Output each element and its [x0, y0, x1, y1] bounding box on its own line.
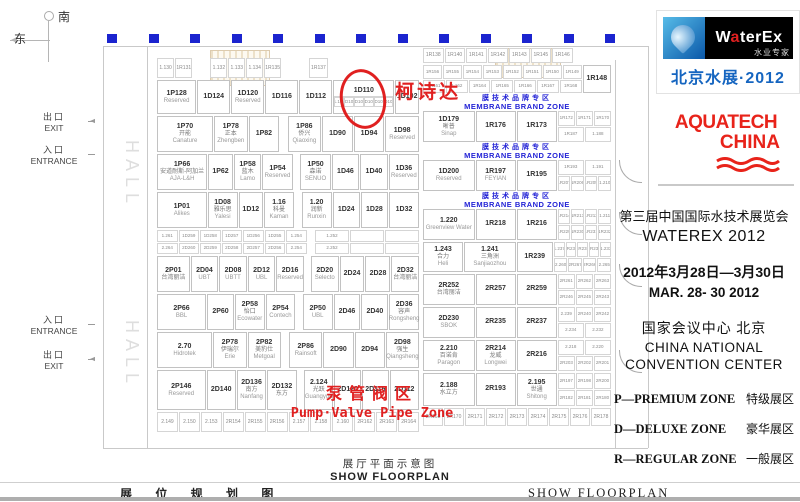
booth-name-en: SBOK — [440, 323, 457, 330]
booth-name-en: Metgoal — [253, 354, 274, 361]
small-booth — [350, 230, 384, 242]
booth-1R138: 1R138 — [423, 48, 444, 63]
booth-1.20: 1.20润新Runxin — [302, 192, 332, 228]
legend-zone-en: P—PREMIUM ZONE — [614, 392, 735, 407]
booth-id: 1D200 — [438, 168, 459, 176]
booth-1R213: 1R213 — [571, 209, 584, 224]
legend-zone-cn: 特级展区 — [746, 390, 794, 407]
booth-1D24: 1D24 — [333, 192, 360, 228]
booth-2R240: 2R240 — [576, 307, 593, 322]
aisle-gap — [305, 256, 310, 292]
booth-2D40: 2D40 — [361, 294, 388, 330]
booth-2.234: 2.234 — [558, 323, 584, 338]
booth-id: 1.220 — [440, 217, 458, 225]
booth-id: 1P54 — [269, 165, 285, 173]
booth-id: 1P01 — [174, 203, 190, 211]
booth-name-en: Reserved — [277, 275, 303, 282]
booth-1.134: 1.134 — [246, 58, 263, 78]
booth-name-en: Heli — [438, 261, 448, 268]
booth-id: 2D16 — [282, 267, 299, 275]
venue-en-line1: CHINA NATIONAL — [610, 340, 798, 355]
booth-1R167: 1R167 — [537, 80, 559, 94]
booth-row: 1P01Alikes1D08雅乐思Yalesi1D121.16科曼Kaman1.… — [157, 192, 419, 228]
booth-2R242: 2R242 — [594, 307, 611, 322]
gate-label-en: EXIT — [24, 123, 84, 133]
small-booth-row: 2.2642D2602D2592D2582D2572D2562.254 — [157, 243, 307, 255]
small-booth-row: 2.2392R2402R242 — [558, 307, 611, 322]
small-booth-row: 1R1931.191 — [558, 160, 611, 175]
booth-name-en: Paragon — [437, 360, 460, 367]
booth-1D108: 1D108 — [344, 97, 354, 107]
waterex-tagline: 水业专家 — [754, 47, 790, 58]
booth-row: 1P70开能Canature1P78正本Zhengben1P821P86侨兴Qi… — [157, 116, 419, 152]
booth-2D259: 2D259 — [200, 243, 221, 255]
column-marker — [149, 34, 159, 43]
booth-id: 2R214 — [485, 345, 506, 353]
booth-1R145: 1R145 — [531, 48, 552, 63]
compass-line-vertical — [48, 20, 49, 62]
booth-1R193: 1R193 — [558, 160, 584, 175]
booth-2R216: 2R216 — [517, 340, 557, 371]
booth-1.16: 1.16科曼Kaman — [264, 192, 294, 228]
booth-name-cn: 森诺 — [310, 169, 322, 176]
booth-row: 2P01台湾丽洁2D04UBT2D08UBTT2D12UBL2D16Reserv… — [157, 256, 419, 292]
booth-1R154: 1R154 — [463, 65, 482, 79]
booth-name-en: UBL — [312, 313, 324, 320]
booth-2D16: 2D16Reserved — [276, 256, 304, 292]
booth-row: 2.70Hidrotek2P78伊瑞尔Erie2P82美豹仕Metgoal2P8… — [157, 332, 419, 368]
booth-1R230: 1R230 — [571, 225, 584, 240]
booth-2R173: 2R173 — [507, 408, 527, 426]
booth-1D110: 柯诗达1D1101.1091D1081D1071D1061D1051D104 — [333, 80, 394, 114]
booth-2.220: 2.220 — [585, 340, 611, 355]
wall-outer-right — [648, 46, 649, 448]
booth-id: 2R235 — [485, 318, 506, 326]
booth-id: 2D90 — [330, 346, 347, 354]
booth-id: 2P86 — [298, 343, 314, 351]
booth-2D12: 2D12UBL — [248, 256, 276, 292]
booth-name-en: AJA-L&H — [170, 176, 195, 183]
booth-name-en: Qiaoxing — [293, 138, 317, 145]
small-booth-row: 1R1721R1711R170 — [558, 111, 611, 126]
booth-name-en: Hidrotek — [173, 351, 195, 358]
legend-row: P—PREMIUM ZONE特级展区 — [614, 390, 794, 407]
booth-name-en: Runxin — [307, 214, 326, 221]
booth-id: 1P128 — [166, 90, 186, 98]
booth-name-en: Zhengben — [217, 138, 244, 145]
small-booth-row: 1R2141R2131R2121.211 — [558, 209, 611, 224]
booth-1R153: 1R153 — [483, 65, 502, 79]
booth-2D24: 2D24 — [340, 256, 365, 292]
booth-row: 1.2611D2591D2581D2571D2561D2551.2542.264… — [157, 230, 419, 254]
booth-2.210: 2.210百诺肯Paragon — [423, 340, 475, 371]
small-booth-cluster: 2R2612R2622R2632R2462R2452R243 — [558, 274, 611, 305]
booth-1R135: 1R135 — [264, 58, 281, 78]
booth-1.237: 1.237 — [554, 242, 565, 257]
booth-2D94: 2D94 — [355, 332, 385, 368]
booth-2D258: 2D258 — [222, 243, 243, 255]
hall-label: HALL — [121, 320, 142, 389]
booth-name-en: Greenview Water — [426, 225, 472, 232]
small-booth-cluster: 2.2392R2402R2422.2342.232 — [558, 307, 611, 338]
booth-id: 1D94 — [361, 130, 378, 138]
booth-name-cn: 三角洲 — [481, 254, 499, 261]
booth-name-cn: 伊瑞尔 — [221, 347, 239, 354]
booth-1R173: 1R173 — [517, 111, 557, 142]
booth-2P66: 2P66BBL — [157, 294, 206, 330]
booth-1R168: 1R168 — [560, 80, 582, 94]
booth-1.243: 1.243合力Heli — [423, 242, 463, 272]
booth-sub-ids: 1.1091D1081D1071D1061D1051D104 — [334, 96, 393, 107]
plan-caption-cn: 展厅平面示意图 — [300, 456, 480, 471]
booth-name-en: Rongsheng — [389, 316, 420, 323]
booth-name-en: BBL — [176, 313, 187, 320]
small-booth-cluster: 2.2182.2202R2032R2022R201 — [558, 340, 611, 371]
legend-zone-en: R—REGULAR ZONE — [614, 452, 737, 467]
booth-1R165: 1R165 — [491, 80, 513, 94]
booth-2R263: 2R263 — [594, 274, 611, 289]
booth-2D08: 2D08UBTT — [219, 256, 247, 292]
booth-2P01: 2P01台湾丽洁 — [157, 256, 190, 292]
booth-1D90: 1D90 — [322, 116, 353, 152]
booth-2D260: 2D260 — [179, 243, 200, 255]
booth-name-en: Longwei — [484, 360, 506, 367]
small-booth-row: 2.2602R2672R2662.265 — [554, 258, 611, 273]
booth-1R131: 1R131 — [175, 58, 192, 78]
booth-1P01: 1P01Alikes — [157, 192, 207, 228]
booth-1R143: 1R143 — [509, 48, 530, 63]
booth-row: 1P66安道耐斯-阿加兰AJA-L&H1P621P58蓝木Lamo1P54Res… — [157, 154, 419, 190]
booth-id: 2R252 — [438, 282, 459, 290]
column-marker — [522, 34, 532, 43]
booth-1R149: 1R149 — [563, 65, 582, 79]
booth-id: 2P66 — [173, 305, 189, 313]
small-booth-cluster: 2R1972R1982R2002R1822R1812R180 — [558, 373, 611, 406]
booth-2R257: 2R257 — [476, 274, 516, 305]
booth-id: 1R195 — [526, 171, 547, 179]
booth-1R239: 1R239 — [517, 242, 553, 272]
entrance-label: 入口ENTRANCE — [24, 143, 84, 166]
booth-name-en: UBT — [198, 275, 210, 282]
booth-1R148: 1R148 — [583, 65, 611, 93]
small-booth-strip: 1R1381R1401R1411R1421R1431R1451R146 — [423, 48, 573, 63]
legend-zone-en: D—DELUXE ZONE — [614, 422, 726, 437]
booth-name-cn: 容声 — [398, 309, 410, 316]
booth-row: 1.1301R1311.1321.1331.1341R1351R137 — [157, 58, 419, 78]
booth-1R166: 1R166 — [514, 80, 536, 94]
booth-1D40: 1D40 — [360, 154, 388, 190]
column-marker — [356, 34, 366, 43]
booth-name-en: Ecowater — [237, 316, 262, 323]
gate-label-en: ENTRANCE — [24, 326, 84, 336]
booth-1D120: 1D120Reserved — [231, 80, 264, 114]
booth-id: 1D40 — [366, 168, 383, 176]
booth-id: 1D36 — [395, 165, 412, 173]
booth-id: 1R239 — [524, 253, 545, 261]
booth-1D107: 1D107 — [354, 97, 364, 107]
wall-inner-left — [147, 46, 148, 448]
booth-id: 2D28 — [370, 270, 387, 278]
venue-cn: 国家会议中心 北京 — [610, 318, 798, 338]
booth-2R202: 2R202 — [576, 356, 593, 371]
aisle-gap — [308, 230, 315, 254]
booth-2R214: 2R214龙威Longwei — [476, 340, 516, 371]
wall-outer-left — [103, 46, 104, 448]
booth-id: 1D24 — [338, 206, 355, 214]
booth-id: 2R216 — [526, 351, 547, 359]
booth-name-en: Erie — [225, 354, 236, 361]
gate-label-en: EXIT — [24, 361, 84, 371]
booth-2.232: 2.232 — [585, 323, 611, 338]
gate-label-cn: 出口 — [24, 110, 84, 123]
booth-1R212: 1R212 — [585, 209, 598, 224]
booth-name-en: Reserved — [389, 135, 415, 142]
booth-2R261: 2R261 — [558, 274, 575, 289]
booth-2P60: 2P60 — [207, 294, 234, 330]
booth-row: 2P66BBL2P602P58怡口Ecowater2P54Contech2P50… — [157, 294, 419, 330]
booth-name-en: Reserved — [235, 98, 261, 105]
booth-name-cn: 世通 — [531, 387, 543, 394]
booth-name-en: FEYIAN — [485, 176, 507, 183]
small-booth-row: 2R2032R2022R201 — [558, 356, 611, 371]
booth-name-en: Qiangsheng — [386, 354, 418, 361]
booth-2R178: 2R178 — [591, 408, 611, 426]
booth-2R245: 2R245 — [576, 290, 593, 305]
booth-1P54: 1P54Reserved — [262, 154, 292, 190]
booth-id: 1R173 — [526, 122, 547, 130]
booth-1.130: 1.130 — [157, 58, 174, 78]
booth-id: 2D94 — [361, 346, 378, 354]
column-marker — [190, 34, 200, 43]
small-booth-row: 2R2462R2452R243 — [558, 290, 611, 305]
booth-1.132: 1.132 — [210, 58, 227, 78]
exit-label: 出口EXIT — [24, 110, 84, 133]
booth-2D140: 2D140 — [207, 370, 236, 410]
booth-id: 2R259 — [526, 285, 547, 293]
booth-id: 2R237 — [526, 318, 547, 326]
booth-1P50: 1P50森诺SENUO — [300, 154, 330, 190]
small-booth-row: 1R2071R2061R2051.210 — [558, 176, 611, 191]
booth-1D46: 1D46 — [332, 154, 360, 190]
booth-name-en: Reserved — [168, 391, 194, 398]
booth-1D112: 1D112 — [299, 80, 332, 114]
booth-1R234: 1R234 — [589, 242, 600, 257]
small-booth-row: 1R2291R2301R2311R232 — [558, 225, 611, 240]
booth-2D20: 2D20Selecto — [311, 256, 339, 292]
event-title-block: 第三届中国国际水技术展览会 WATEREX 2012 — [610, 206, 798, 246]
booth-2D46: 2D46 — [334, 294, 361, 330]
legend-zone-cn: 一般展区 — [746, 450, 794, 467]
booth-name-cn: 龙威 — [490, 353, 502, 360]
small-booth-cluster: 1.2522.252 — [315, 230, 419, 254]
booth-1P82: 1P82 — [249, 116, 280, 152]
booth-id: 1D116 — [272, 93, 292, 101]
booth-name-cn: 润新 — [311, 207, 323, 214]
booth-2R266: 2R266 — [583, 258, 597, 273]
event-date-cn: 2012年3月28日—3月30日 — [610, 262, 798, 282]
booth-2.150: 2.150 — [179, 412, 200, 432]
booth-2R203: 2R203 — [558, 356, 575, 371]
booth-name-en: Canature — [173, 138, 198, 145]
booth-2D28: 2D28 — [365, 256, 390, 292]
small-booth-row: 2.252 — [315, 243, 419, 255]
gate-label-cn: 入口 — [24, 313, 84, 326]
booth-name-cn: 台湾丽洁 — [393, 275, 417, 282]
booth-name-en: Reserved — [265, 173, 291, 180]
booth-2R175: 2R175 — [549, 408, 569, 426]
booth-row: 2.210百诺肯Paragon2R214龙威Longwei2R2162.2182… — [423, 340, 611, 371]
booth-name-en: Selecto — [315, 275, 335, 282]
bottom-strip — [0, 497, 800, 501]
aisle-gap — [193, 58, 209, 78]
booth-1R236: 1R236 — [566, 242, 577, 257]
small-booth-row: 1.2371R2361R2351R2341.233 — [554, 242, 611, 257]
booth-1D256: 1D256 — [243, 230, 264, 242]
aisle-gap — [574, 48, 611, 63]
booth-id: 1D12 — [242, 206, 259, 214]
aisle-gap — [296, 294, 302, 330]
booth-1R142: 1R142 — [488, 48, 509, 63]
booth-2R246: 2R246 — [558, 290, 575, 305]
booth-1R151: 1R151 — [523, 65, 542, 79]
booth-id: 1P82 — [256, 130, 272, 138]
booth-row: 1.220Greenview Water1R2181R2161R2141R213… — [423, 209, 611, 240]
column-marker — [439, 34, 449, 43]
booth-2R197: 2R197 — [558, 373, 575, 389]
booth-row: 2R252台湾丽洁2R2572R2592R2612R2622R2632R2462… — [423, 274, 611, 305]
booth-id: 1D32 — [396, 206, 413, 214]
column-marker — [273, 34, 283, 43]
booth-id: 2D40 — [366, 308, 383, 316]
booth-1D106: 1D106 — [364, 97, 374, 107]
booth-id: 1D110 — [354, 87, 374, 95]
wall-top — [103, 46, 648, 47]
booth-id: 1D46 — [337, 168, 354, 176]
booth-name-en: Yalesi — [215, 214, 231, 221]
booth-2D98: 2D98强生Qiangsheng — [386, 332, 419, 368]
aisle-gap — [329, 58, 419, 78]
compass-south-label: 南 — [58, 8, 70, 25]
booth-id: 1R148 — [586, 75, 607, 83]
event-title-en: WATEREX 2012 — [610, 228, 798, 246]
booth-2.218: 2.218 — [558, 340, 584, 355]
booth-1.254: 1.254 — [286, 230, 307, 242]
event-dates-block: 2012年3月28日—3月30日 MAR. 28- 30 2012 — [610, 262, 798, 300]
booth-id: 2D140 — [211, 386, 232, 394]
booth-1R171: 1R171 — [576, 111, 593, 126]
booth-name-cn: 侨兴 — [298, 131, 310, 138]
booth-2.260: 2.260 — [554, 258, 568, 273]
column-marker — [315, 34, 325, 43]
small-booth-strip: 1.1301R131 — [157, 58, 192, 78]
booth-2R182: 2R182 — [558, 390, 575, 406]
booth-name-cn: 安道耐斯-阿加兰 — [160, 169, 204, 176]
booth-1R140: 1R140 — [445, 48, 466, 63]
venue-en-line2: CONVENTION CENTER — [610, 357, 798, 372]
aquatech-waves-icon — [716, 156, 780, 172]
membrane-brand-zone-label: 膜技术品牌专区MEMBRANE BRAND ZONE — [423, 144, 611, 160]
compass: 南 东 — [6, 6, 86, 66]
small-booth-cluster: 1R1721R1711R1701R1871.188 — [558, 111, 611, 142]
aisle-gap — [295, 192, 301, 228]
small-booth-row: 1R1871.188 — [558, 127, 611, 142]
booth-1D116: 1D116 — [265, 80, 298, 114]
booth-2P146: 2P146Reserved — [157, 370, 206, 410]
booth-1D08: 1D08雅乐思Yalesi — [208, 192, 238, 228]
door-arc-icon — [619, 160, 642, 183]
column-marker — [398, 34, 408, 43]
booth-name-en: Lamo — [240, 176, 255, 183]
small-booth-cluster: 1.2371R2361R2351R2341.2332.2602R2672R266… — [554, 242, 611, 272]
booth-2R262: 2R262 — [576, 274, 593, 289]
booth-name-en: Sanjiaozhou — [473, 261, 506, 268]
legend-zone-cn: 豪华展区 — [746, 420, 794, 437]
small-booth-cluster: 1.2611D2591D2581D2571D2561D2551.2542.264… — [157, 230, 307, 254]
booth-name-cn: 台湾丽洁 — [161, 275, 185, 282]
booth-id: 2R257 — [485, 285, 506, 293]
booth-1P66: 1P66安道耐斯-阿加兰AJA-L&H — [157, 154, 207, 190]
booth-2R259: 2R259 — [517, 274, 557, 305]
booth-name-en: Kaman — [269, 214, 288, 221]
booth-1D12: 1D12 — [239, 192, 263, 228]
booth-name-en: Shitong — [526, 394, 546, 401]
booth-2.70: 2.70Hidrotek — [157, 332, 212, 368]
booth-2R243: 2R243 — [594, 290, 611, 305]
booth-2R176: 2R176 — [570, 408, 590, 426]
booth-row: 1.243合力Heli1.241三角洲Sanjiaozhou1R2391.237… — [423, 242, 611, 272]
booth-1R176: 1R176 — [476, 111, 516, 142]
event-title-cn: 第三届中国国际水技术展览会 — [610, 206, 798, 225]
small-booth-row: 2.2182.220 — [558, 340, 611, 355]
booth-1R207: 1R207 — [558, 176, 571, 191]
booth-1R137: 1R137 — [309, 58, 328, 78]
booth-1.133: 1.133 — [228, 58, 245, 78]
booth-id: 2D46 — [339, 308, 356, 316]
booth-1D200: 1D200Reserved — [423, 160, 475, 191]
booth-1R152: 1R152 — [503, 65, 522, 79]
booth-2D32: 2D32台湾丽洁 — [391, 256, 419, 292]
booth-name-en: Sinap — [441, 131, 456, 138]
booth-2R201: 2R201 — [594, 356, 611, 371]
booth-2P86: 2P86Rainsoft — [289, 332, 322, 368]
booth-1D28: 1D28 — [361, 192, 388, 228]
booth-1R172: 1R172 — [558, 111, 575, 126]
gate-label-cn: 入口 — [24, 143, 84, 156]
event-date-en: MAR. 28- 30 2012 — [610, 285, 798, 300]
booth-1D179: 1D179晰普Sinap — [423, 111, 475, 142]
booth-1D259: 1D259 — [179, 230, 200, 242]
booth-name-en: Reserved — [164, 98, 190, 105]
booth-1P62: 1P62 — [208, 154, 233, 190]
aisle-gap — [280, 116, 286, 152]
booth-1R231: 1R231 — [585, 225, 598, 240]
booth-2R154: 2R154 — [223, 412, 244, 432]
booth-1.220: 1.220Greenview Water — [423, 209, 475, 240]
booth-2P78: 2P78伊瑞尔Erie — [213, 332, 246, 368]
booth-row: 1D200Reserved1R197FEYIAN1R1951R1931.1911… — [423, 160, 611, 191]
booth-id: 1R216 — [526, 220, 547, 228]
booth-2.252: 2.252 — [315, 243, 349, 255]
booth-1R214: 1R214 — [558, 209, 571, 224]
waterex-logo: WaterEx 水业专家 北京水展·2012 — [656, 10, 800, 94]
legend-row: D—DELUXE ZONE豪华展区 — [614, 420, 794, 437]
small-booth-strip: 1.1321.1331.1341R135 — [210, 58, 281, 78]
gate-label-en: ENTRANCE — [24, 156, 84, 166]
booth-name-cn: 正本 — [225, 131, 237, 138]
booth-1.241: 1.241三角洲Sanjiaozhou — [464, 242, 516, 272]
booth-name-cn: 强生 — [396, 347, 408, 354]
aisle-gap — [294, 154, 300, 190]
